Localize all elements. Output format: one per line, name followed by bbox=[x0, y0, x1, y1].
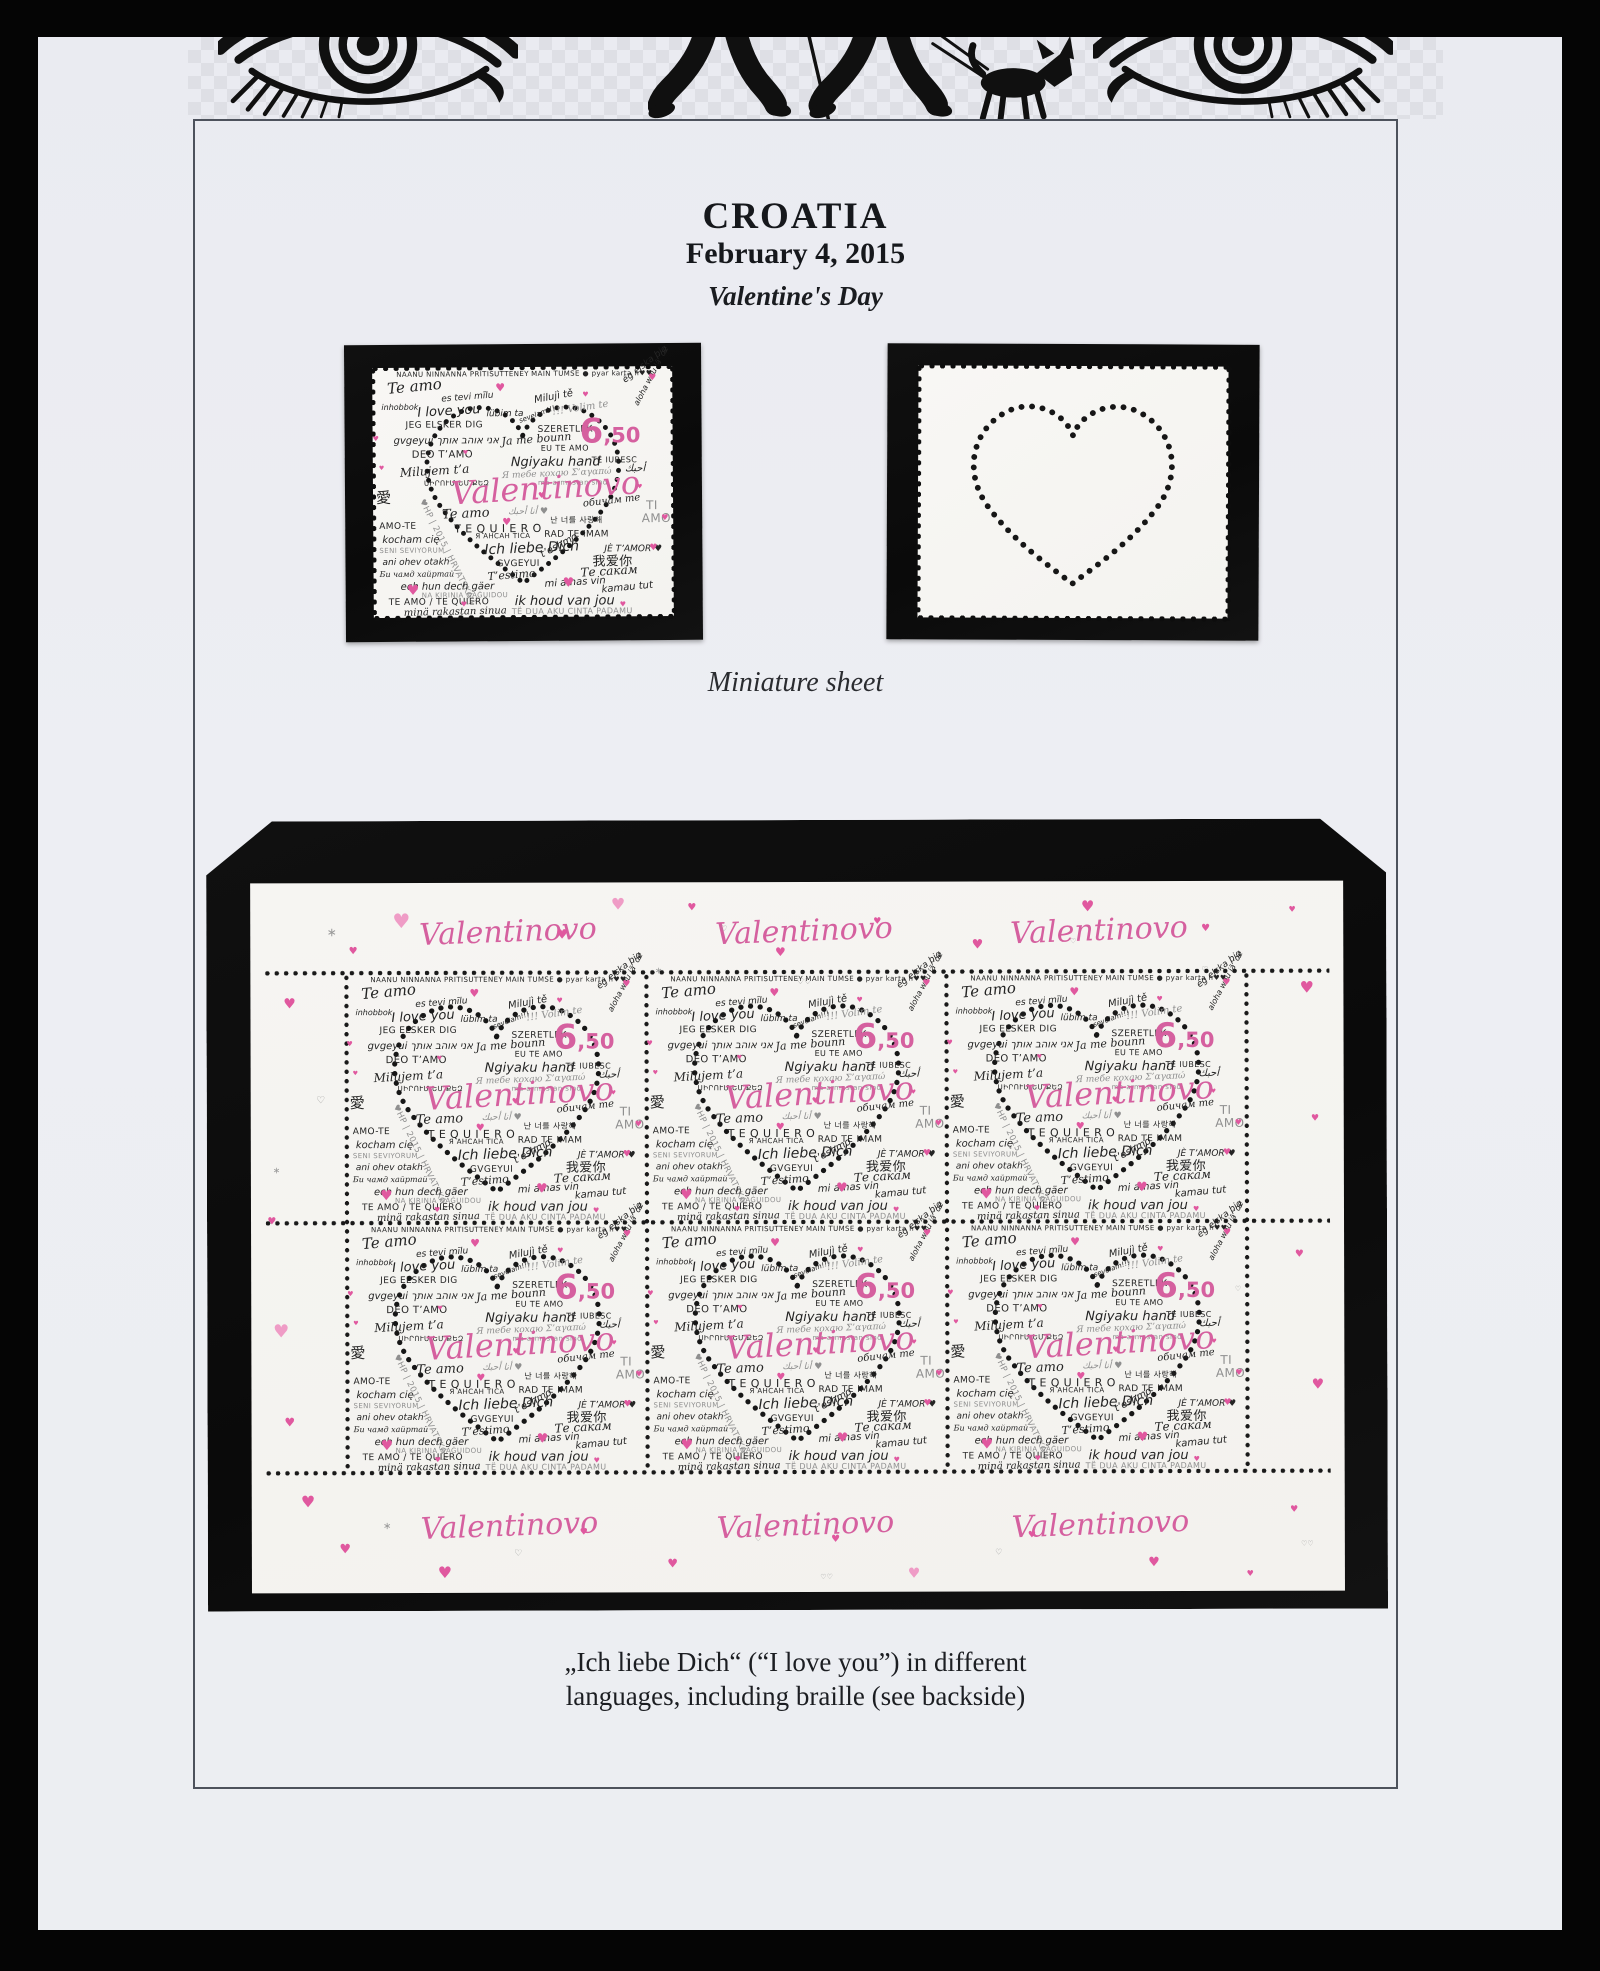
stamp-phrase: 난 너를 사랑해 bbox=[824, 1122, 876, 1130]
stamp-phrase: I love you bbox=[991, 1007, 1055, 1023]
pink-heart: ♥ bbox=[1193, 1206, 1199, 1213]
sheet-valentinovo-script: Valentinovo bbox=[1011, 1507, 1190, 1544]
stamp-phrase: JEG ELSKER DIG bbox=[680, 1276, 757, 1285]
stamp-phrase: TË DUA AKU CINTA PADAMU bbox=[485, 1214, 606, 1222]
stamp-denomination: 6,50 bbox=[854, 1269, 915, 1303]
doodle-heart: ♡ bbox=[995, 1549, 1002, 1557]
stamp-phrase: ani ohev otakh bbox=[356, 1164, 423, 1173]
stamp-phrase: inhobbok bbox=[355, 1009, 392, 1017]
stamp-phrase: gvgeyui אני אוהב אותך bbox=[668, 1291, 773, 1301]
pink-heart: ♥ bbox=[476, 1124, 485, 1134]
stamp-phrase: ik houd van jou bbox=[488, 1200, 588, 1213]
stamp-phrase: SENI SEVIYORUM bbox=[653, 1402, 718, 1409]
stamp-phrase: Я АНСАН ТІСА bbox=[749, 1388, 804, 1395]
pink-heart: ♥ bbox=[1035, 1455, 1041, 1462]
stamp-phrase: ik houd van jou bbox=[788, 1199, 888, 1212]
stamp-phrase: AMO-TE bbox=[953, 1126, 990, 1135]
stamp-phrase: I love you bbox=[417, 403, 481, 420]
pink-heart: ♥ bbox=[380, 1189, 393, 1203]
stamp-phrase: kocham cię bbox=[956, 1389, 1013, 1399]
pink-heart: ♥ bbox=[495, 382, 505, 393]
pink-heart: ♥ bbox=[635, 1120, 642, 1128]
stamp-phrase: kocham cię bbox=[382, 535, 439, 545]
pink-heart: ♥ bbox=[856, 997, 862, 1004]
stamp-phrase: Я АНСАН ТІСА bbox=[449, 1139, 504, 1146]
pink-heart: ♥ bbox=[922, 979, 930, 988]
stamp-phrase: T’estimo bbox=[487, 567, 536, 582]
stamp-phrase: 愛 bbox=[650, 1345, 665, 1360]
doodle-heart: ♡♡ bbox=[1301, 1541, 1314, 1548]
page-subtitle: Valentine's Day bbox=[195, 281, 1396, 312]
stamp-phrase: TË DUA AKU CINTA PADAMU bbox=[785, 1213, 906, 1221]
pink-heart: ♥ bbox=[611, 897, 625, 913]
stamp-phrase: TI bbox=[1220, 1103, 1232, 1115]
pink-heart: ♥ bbox=[593, 1208, 599, 1215]
pink-heart: ♥ bbox=[1223, 1398, 1231, 1407]
stamp-phrase: inhobbok bbox=[956, 1258, 993, 1266]
pink-heart: ♥ bbox=[831, 1535, 840, 1545]
stamp-phrase: Би чамд хайртай bbox=[953, 1174, 1028, 1182]
stamp-phrase: 난 너를 사랑해 bbox=[1124, 1121, 1176, 1129]
doodle-heart: ♡ bbox=[514, 1550, 522, 1559]
caption: „Ich liebe Dich“ (“I love you”) in diffe… bbox=[195, 1645, 1396, 1713]
stamp-phrase: kocham cię bbox=[656, 1140, 713, 1150]
caption-line-1: „Ich liebe Dich“ (“I love you”) in diffe… bbox=[195, 1645, 1396, 1679]
pink-heart: ♥ bbox=[470, 1238, 480, 1249]
stamp-phrase: SENI SEVIYORUM bbox=[953, 1401, 1018, 1408]
pink-heart: ♥ bbox=[339, 1543, 351, 1556]
perforation-edge bbox=[369, 366, 378, 620]
stamp-phrase: kocham cię bbox=[356, 1141, 413, 1151]
pink-heart: ♥ bbox=[653, 1320, 658, 1326]
stamp-phrase: Te amo bbox=[361, 1232, 417, 1252]
pink-heart: ♥ bbox=[893, 1207, 899, 1214]
pink-heart: ♥ bbox=[923, 1399, 931, 1408]
pink-heart: ♥ bbox=[1070, 1236, 1080, 1247]
stamp-phrase: Я АНСАН ТІСА bbox=[1049, 1387, 1104, 1394]
stamp-phrase: inhobbok bbox=[356, 1259, 393, 1267]
page-date: February 4, 2015 bbox=[195, 237, 1396, 271]
pink-heart: ♥ bbox=[437, 1055, 442, 1061]
pink-heart: ♥ bbox=[284, 1416, 295, 1428]
stamp-phrase: AMO-TE bbox=[353, 1378, 390, 1387]
stamp-phrase: AMO-TE bbox=[953, 1376, 990, 1385]
stamp-phrase: SENI SEVIYORUM bbox=[953, 1151, 1018, 1158]
pink-heart: ♥ bbox=[1222, 978, 1230, 987]
sheet-valentinovo-script: Valentinovo bbox=[1009, 913, 1188, 950]
sheet-mount: ValentinovoValentinovoValentinovoValenti… bbox=[206, 818, 1388, 1611]
stamp-phrase: Я АНСАН ТІСА bbox=[475, 533, 530, 540]
stamp-mount-back bbox=[886, 343, 1259, 641]
stamp-phrase: AMO-TE bbox=[379, 523, 416, 532]
pink-heart: ♥ bbox=[1235, 1368, 1242, 1376]
stamp-phrase: AMO-TE bbox=[353, 1128, 390, 1137]
sheet-stamp: NAANU NINNANNA PRITISUTTENEYMAIN TUMSE ●… bbox=[947, 1221, 1248, 1472]
pink-heart: ♥ bbox=[953, 1069, 958, 1075]
pink-heart: ♥ bbox=[953, 1319, 958, 1325]
pink-heart: ♥ bbox=[680, 1189, 693, 1203]
stamp-phrase: ani ohev otakh bbox=[957, 1413, 1024, 1422]
stamp-denomination: 6,50 bbox=[553, 1020, 614, 1054]
doodle-heart: ♡ bbox=[755, 1535, 762, 1543]
sheet-stamp: NAANU NINNANNA PRITISUTTENEYMAIN TUMSE ●… bbox=[946, 971, 1247, 1222]
caption-line-2: languages, including braille (see backsi… bbox=[195, 1679, 1396, 1713]
stamp-phrase: JEG ELSKER DIG bbox=[680, 1026, 757, 1035]
stamp-phrase: inhobbok bbox=[655, 1009, 692, 1017]
pink-heart: ♥ bbox=[1034, 1205, 1040, 1212]
stamp-back-face bbox=[917, 365, 1228, 618]
stamp-phrase: ani ohev otakh bbox=[357, 1414, 424, 1423]
stamp-phrase: 愛 bbox=[350, 1096, 365, 1111]
pink-heart: ♥ bbox=[947, 1039, 953, 1046]
stamp-phrase: Te amo bbox=[361, 982, 417, 1002]
stamp-phrase: Te amo bbox=[661, 1231, 717, 1251]
stamp-phrase: JEG ELSKER DIG bbox=[380, 1277, 457, 1286]
pink-heart: ♥ bbox=[392, 911, 410, 931]
stamp-phrase: T’estimo bbox=[461, 1173, 510, 1187]
pink-heart: ♥ bbox=[653, 1070, 658, 1076]
pink-heart: ♥ bbox=[273, 1324, 289, 1342]
photo-background: CROATIA February 4, 2015 Valentine's Day… bbox=[0, 0, 1600, 1971]
stamp-phrase: gvgeyui אני אוהב אותך bbox=[394, 436, 499, 447]
stamp-phrase: Te amo bbox=[961, 1230, 1017, 1250]
stamp-phrase: T’estimo bbox=[461, 1423, 510, 1437]
pink-heart: ♥ bbox=[347, 1291, 353, 1298]
pink-heart: ♥ bbox=[537, 1433, 549, 1446]
pink-heart: ♥ bbox=[980, 1188, 993, 1202]
pink-heart: ♥ bbox=[622, 980, 630, 989]
pink-heart: ♥ bbox=[1247, 1569, 1254, 1577]
pink-heart: ♥ bbox=[661, 513, 668, 521]
stamp-phrase: T’estimo bbox=[1061, 1422, 1110, 1436]
stamp-phrase: T’estimo bbox=[1061, 1172, 1110, 1186]
pink-heart: ♥ bbox=[1290, 1505, 1298, 1514]
pink-heart: ♥ bbox=[776, 1373, 785, 1383]
pink-heart: ♥ bbox=[923, 1149, 931, 1158]
pink-heart: ♥ bbox=[1157, 1246, 1163, 1253]
stamp-phrase: gvgeyui אני אוהב אותך bbox=[668, 1041, 773, 1051]
pink-heart: ♥ bbox=[776, 1123, 785, 1133]
perforation-edge bbox=[917, 362, 1231, 370]
stamp-phrase: SENI SEVIYORUM bbox=[353, 1403, 418, 1410]
pink-heart: ♥ bbox=[737, 1055, 742, 1061]
stamp-phrase: AMO-TE bbox=[653, 1377, 690, 1386]
pink-heart: ♥ bbox=[1312, 1378, 1325, 1392]
stamp-title-script: Valentinovo bbox=[1024, 1321, 1215, 1363]
pink-heart: ♥ bbox=[437, 1305, 442, 1311]
stamp-title-script: Valentinovo bbox=[424, 1323, 615, 1365]
blind-walker-and-guide-dog-illustration bbox=[648, 37, 1078, 119]
stamp-phrase: أنا أحبك ♥ bbox=[1082, 1112, 1122, 1121]
stamp-phrase: ani ohev otakh bbox=[656, 1163, 723, 1172]
stamp-phrase: I love you bbox=[992, 1257, 1056, 1273]
stamp-phrase: TI bbox=[646, 499, 658, 511]
stamp-phrase: 愛 bbox=[350, 1346, 365, 1361]
stamp-phrase: 난 너를 사랑해 bbox=[550, 516, 603, 524]
stamp-denomination: 6,50 bbox=[554, 1270, 615, 1304]
stamp-denomination: 6,50 bbox=[1153, 1018, 1214, 1052]
pink-heart: ♥ bbox=[873, 917, 881, 926]
pink-heart: ♥ bbox=[981, 1438, 994, 1452]
pink-heart: ♥ bbox=[556, 998, 562, 1005]
stamp-phrase: TI bbox=[920, 1354, 932, 1366]
pink-heart: ♥ bbox=[935, 1119, 942, 1127]
pink-heart: ♥ bbox=[580, 1529, 588, 1538]
stamp-phrase: I love you bbox=[692, 1258, 756, 1274]
pink-heart: ♥ bbox=[667, 1557, 678, 1569]
pink-heart: ♥ bbox=[775, 946, 786, 958]
stamp-phrase: inhobbok bbox=[656, 1259, 693, 1267]
eye-illustration-right bbox=[1093, 37, 1393, 119]
stamp-phrase: Би чамд хайртай bbox=[653, 1175, 728, 1183]
stamp-title-script: Valentinovo bbox=[424, 1073, 615, 1115]
pink-heart: ♥ bbox=[301, 1494, 315, 1510]
pink-heart: ♥ bbox=[1295, 1250, 1304, 1260]
pink-heart: ♥ bbox=[349, 947, 358, 957]
eye-illustration-left bbox=[218, 37, 518, 119]
perforation-edge bbox=[1224, 365, 1232, 621]
stamp-phrase: أنا أحبك ♥ bbox=[482, 1364, 522, 1373]
pink-heart: ♥ bbox=[1069, 986, 1079, 997]
pink-heart: ♥ bbox=[687, 904, 696, 914]
page-frame: CROATIA February 4, 2015 Valentine's Day… bbox=[193, 119, 1398, 1789]
pink-heart: ♥ bbox=[681, 1439, 694, 1453]
sheet-valentinovo-script: Valentinovo bbox=[716, 1508, 895, 1545]
stamp-phrase: Би чамд хайртай bbox=[353, 1175, 428, 1183]
stamp-phrase: SENI SEVIYORUM bbox=[353, 1153, 418, 1160]
stamp-phrase: JEG ELSKER DIG bbox=[980, 1025, 1057, 1034]
stamp-phrase: I love you bbox=[691, 1008, 755, 1024]
stamp-phrase: Я АНСАН ТІСА bbox=[1049, 1137, 1104, 1144]
stamp-phrase: 愛 bbox=[376, 490, 392, 505]
pink-heart: ♥ bbox=[1076, 1122, 1085, 1132]
pink-heart: ♥ bbox=[594, 1458, 600, 1465]
pink-heart: ♥ bbox=[1148, 1556, 1160, 1569]
heart-perforation-outline bbox=[927, 373, 1219, 614]
pink-heart: ♥ bbox=[894, 1457, 900, 1464]
pink-heart: ♥ bbox=[582, 392, 588, 399]
stamp-phrase: T’estimo bbox=[761, 1172, 810, 1186]
stamp-phrase: JEG ELSKER DIG bbox=[980, 1275, 1057, 1284]
pink-heart: ♥ bbox=[623, 1400, 631, 1409]
stamp-title-script: Valentinovo bbox=[1024, 1071, 1215, 1113]
pink-heart: ♥ bbox=[476, 1374, 485, 1384]
stamp-denomination: 6,50 bbox=[853, 1019, 914, 1053]
stamp-phrase: ik houd van jou bbox=[489, 1450, 589, 1463]
miniature-sheet: ValentinovoValentinovoValentinovoValenti… bbox=[250, 881, 1345, 1594]
pink-heart: ♥ bbox=[461, 601, 467, 608]
perforation-edge bbox=[669, 364, 678, 618]
stamp-phrase: 愛 bbox=[950, 1344, 965, 1359]
pink-heart: ♥ bbox=[623, 1150, 631, 1159]
pink-heart: ♥ bbox=[648, 374, 656, 383]
pink-heart: ♥ bbox=[1194, 1456, 1200, 1463]
pink-heart: ♥ bbox=[770, 1237, 780, 1248]
stamp-phrase: Я АНСАН ТІСА bbox=[449, 1389, 504, 1396]
stamp-phrase: أنا أحبك ♥ bbox=[782, 1363, 822, 1372]
stamp-phrase: gvgeyui אני אוהב אותך bbox=[968, 1290, 1073, 1300]
pink-heart: ♥ bbox=[857, 1247, 863, 1254]
stamp-phrase: Би чамд хайртай bbox=[954, 1424, 1029, 1432]
pink-heart: ♥ bbox=[353, 1071, 358, 1077]
pink-heart: ♥ bbox=[1037, 1304, 1042, 1310]
pink-heart: ♥ bbox=[556, 929, 568, 942]
pink-heart: ♥ bbox=[381, 1439, 394, 1453]
doodle-heart: ♡♡ bbox=[820, 1574, 833, 1581]
perforation-edge bbox=[915, 614, 1229, 622]
stamp-title-script: Valentinovo bbox=[724, 1072, 915, 1114]
pink-heart: ♥ bbox=[1137, 1431, 1149, 1444]
stamp-phrase: JEG ELSKER DIG bbox=[406, 421, 484, 431]
stamp-phrase: TI bbox=[620, 1105, 632, 1117]
pink-heart: ♥ bbox=[623, 1230, 631, 1239]
pink-heart: ♥ bbox=[635, 1370, 642, 1378]
pink-heart: ♥ bbox=[1201, 924, 1210, 934]
pink-heart: ♥ bbox=[737, 1305, 742, 1311]
sheet-stamp: NAANU NINNANNA PRITISUTTENEYMAIN TUMSE ●… bbox=[647, 1222, 948, 1473]
stamp-phrase: 난 너를 사랑해 bbox=[524, 1123, 576, 1131]
stamp-phrase: Би чамд хайртай bbox=[654, 1425, 729, 1433]
pink-heart: ♥ bbox=[769, 987, 779, 998]
sheet-valentinovo-script: Valentinovo bbox=[714, 914, 893, 951]
pink-heart: ♥ bbox=[735, 1456, 741, 1463]
stamp-phrase: أنا أحبك ♥ bbox=[482, 1114, 522, 1123]
pink-heart: ♥ bbox=[972, 938, 984, 951]
stamp-phrase: TË DUA AKU CINTA PADAMU bbox=[1086, 1462, 1207, 1470]
doodle-heart: ∗ bbox=[273, 1167, 281, 1176]
stamp-phrase: kocham cię bbox=[656, 1390, 713, 1400]
stamp-phrase: gvgeyui אני אוהב אותך bbox=[968, 1040, 1073, 1050]
stamp-phrase: SENI SEVIYORUM bbox=[653, 1152, 718, 1159]
pink-heart: ♥ bbox=[463, 450, 468, 456]
stamp-mount-front: NAANU NINNANNA PRITISUTTENEYMAIN TUMSE ●… bbox=[344, 343, 703, 642]
pink-heart: ♥ bbox=[1223, 1228, 1231, 1237]
pink-heart: ♥ bbox=[1311, 1115, 1319, 1124]
pink-heart: ♥ bbox=[1156, 996, 1162, 1003]
stamp-phrase: TË DUA AKU CINTA PADAMU bbox=[486, 1464, 607, 1472]
pink-heart: ♥ bbox=[647, 1290, 653, 1297]
sheet-stamp: NAANU NINNANNA PRITISUTTENEYMAIN TUMSE ●… bbox=[646, 972, 947, 1223]
stamp-phrase: TI bbox=[1220, 1353, 1232, 1365]
stamp-front-face: NAANU NINNANNA PRITISUTTENEYMAIN TUMSE ●… bbox=[372, 366, 674, 618]
stamp-phrase: gvgeyui אני אוהב אותך bbox=[368, 1292, 473, 1302]
pink-heart: ♥ bbox=[1235, 1118, 1242, 1126]
pink-heart: ♥ bbox=[435, 1457, 441, 1464]
pink-heart: ♥ bbox=[379, 465, 384, 471]
stamp-phrase: kocham cię bbox=[356, 1391, 413, 1401]
sheet-valentinovo-script: Valentinovo bbox=[419, 914, 598, 951]
pink-heart: ♥ bbox=[837, 1432, 849, 1445]
stamp-phrase: Я АНСАН ТІСА bbox=[749, 1138, 804, 1145]
stamp-phrase: Би чамд хайртай bbox=[380, 570, 455, 579]
header-illustration-band bbox=[188, 37, 1443, 119]
stamp-phrase: 愛 bbox=[950, 1094, 965, 1109]
pink-heart: ♥ bbox=[1136, 1181, 1148, 1194]
stamp-phrase: I love you bbox=[391, 1008, 455, 1024]
pink-heart: ♥ bbox=[1076, 1372, 1085, 1382]
pink-heart: ♥ bbox=[407, 584, 420, 598]
stamp-phrase: أنا أحبك ♥ bbox=[508, 508, 548, 517]
pink-heart: ♥ bbox=[908, 1567, 921, 1581]
pink-heart: ♥ bbox=[469, 988, 479, 999]
pink-heart: ♥ bbox=[1028, 1531, 1036, 1540]
doodle-heart: ∗ bbox=[383, 1522, 391, 1532]
pink-heart: ♥ bbox=[1081, 899, 1094, 914]
pink-heart: ♥ bbox=[1300, 980, 1314, 996]
sheet-valentinovo-script: Valentinovo bbox=[421, 1508, 600, 1545]
stamp-phrase: TË DUA AKU CINTA PADAMU bbox=[1085, 1212, 1206, 1220]
pink-heart: ♥ bbox=[563, 577, 575, 590]
pink-heart: ♥ bbox=[438, 1564, 452, 1580]
pink-heart: ♥ bbox=[734, 1206, 740, 1213]
pink-heart: ♥ bbox=[647, 1040, 653, 1047]
pink-heart: ♥ bbox=[557, 1248, 563, 1255]
stamp-phrase: 난 너를 사랑해 bbox=[524, 1373, 576, 1381]
stamp-phrase: Te amo bbox=[961, 980, 1017, 1000]
pink-heart: ♥ bbox=[649, 544, 657, 553]
stamp-phrase: ani ohev otakh bbox=[382, 559, 449, 568]
perforation-edge bbox=[372, 612, 676, 621]
stamp-phrase: inhobbok bbox=[955, 1008, 992, 1016]
stamp-phrase: JEG ELSKER DIG bbox=[380, 1027, 457, 1036]
doodle-heart: ∗ bbox=[327, 926, 337, 938]
stamp-phrase: ik houd van jou bbox=[1089, 1448, 1189, 1461]
pink-heart: ♥ bbox=[947, 1289, 953, 1296]
stamp-phrase: ik houd van jou bbox=[1088, 1198, 1188, 1211]
stamp-phrase: TI bbox=[920, 1104, 932, 1116]
stamp-phrase: ani ohev otakh bbox=[657, 1413, 724, 1422]
stamp-phrase: 난 너를 사랑해 bbox=[824, 1372, 876, 1380]
stamp-phrase: inhobbok bbox=[381, 404, 418, 412]
perforation-edge bbox=[914, 363, 922, 619]
stamp-phrase: أنا أحبك ♥ bbox=[782, 1113, 822, 1122]
stamp-phrase: gvgeyui אני אוהב אותך bbox=[368, 1042, 473, 1052]
doodle-heart: ♡ bbox=[316, 1096, 325, 1106]
stamp-phrase: ik houd van jou bbox=[789, 1449, 889, 1462]
stamp-phrase: Би чамд хайртай bbox=[354, 1425, 429, 1433]
stamp-denomination: 6,50 bbox=[579, 414, 640, 448]
stamp-phrase: TI bbox=[620, 1355, 632, 1367]
pink-heart: ♥ bbox=[923, 1229, 931, 1238]
doodle-heart: ♡ bbox=[1070, 938, 1076, 945]
doodle-heart: ♡ bbox=[720, 925, 727, 933]
pink-heart: ♥ bbox=[836, 1182, 848, 1195]
sheet-stamp: NAANU NINNANNA PRITISUTTENEYMAIN TUMSE ●… bbox=[346, 972, 647, 1223]
stamp-phrase: ani ohev otakh bbox=[956, 1163, 1023, 1172]
pink-heart: ♥ bbox=[935, 1369, 942, 1377]
stamp-phrase: Te amo bbox=[661, 981, 717, 1001]
pink-heart: ♥ bbox=[434, 1207, 440, 1214]
stamp-phrase: أنا أحبك ♥ bbox=[1082, 1362, 1122, 1371]
stamp-phrase: SENI SEVIYORUM bbox=[379, 548, 444, 555]
page-title: CROATIA bbox=[195, 195, 1396, 238]
pink-heart: ♥ bbox=[536, 1183, 548, 1196]
pink-heart: ♥ bbox=[1223, 1148, 1231, 1157]
sheet-stamp: NAANU NINNANNA PRITISUTTENEYMAIN TUMSE ●… bbox=[347, 1222, 648, 1473]
stamp-phrase: AMO-TE bbox=[653, 1127, 690, 1136]
pink-heart: ♥ bbox=[502, 518, 511, 528]
pink-heart: ♥ bbox=[353, 1321, 358, 1327]
pink-heart: ♥ bbox=[347, 1041, 353, 1048]
stamp-phrase: 愛 bbox=[650, 1095, 665, 1110]
pink-heart: ♥ bbox=[620, 601, 626, 608]
pink-heart: ♥ bbox=[283, 997, 296, 1011]
stamp-phrase: I love you bbox=[392, 1258, 456, 1274]
stamp-phrase: 난 너를 사랑해 bbox=[1124, 1371, 1176, 1379]
stamp-phrase: kocham cię bbox=[956, 1139, 1013, 1149]
miniature-sheet-label: Miniature sheet bbox=[195, 667, 1396, 699]
pink-heart: ♥ bbox=[1289, 906, 1296, 914]
